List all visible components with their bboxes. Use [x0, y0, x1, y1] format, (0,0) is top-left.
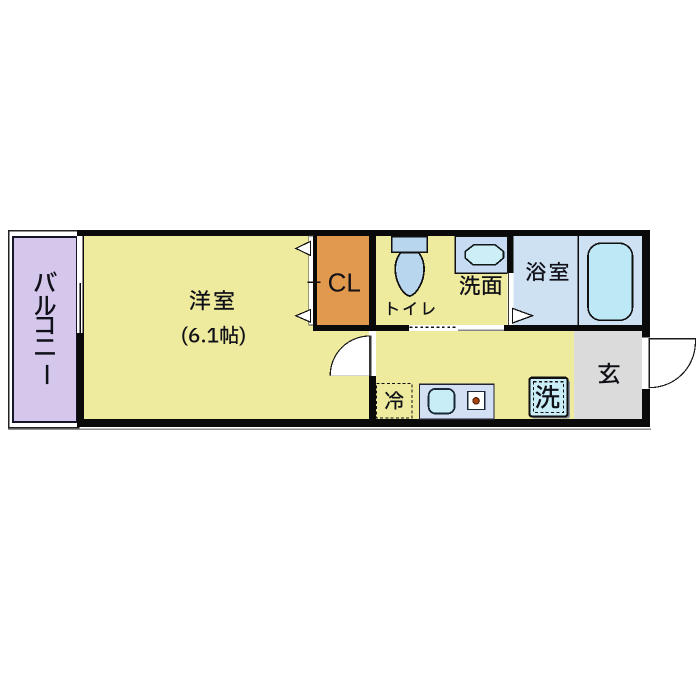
svg-text:ー: ー — [27, 363, 63, 387]
svg-text:浴室: 浴室 — [526, 259, 572, 290]
svg-text:玄: 玄 — [598, 359, 621, 393]
svg-text:洋室: 洋室 — [189, 286, 237, 319]
svg-text:(6.1帖): (6.1帖) — [181, 322, 246, 352]
svg-text:トイレ: トイレ — [384, 299, 439, 323]
svg-text:CL: CL — [328, 268, 361, 298]
svg-text:冷: 冷 — [384, 387, 404, 417]
svg-text:洗: 洗 — [535, 381, 561, 419]
svg-text:洗面: 洗面 — [459, 272, 503, 304]
